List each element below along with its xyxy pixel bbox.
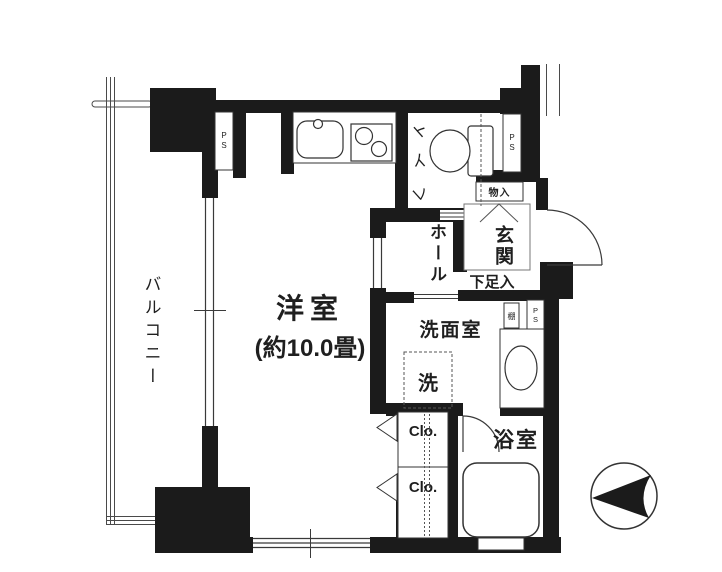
main-room-size-label: (約10.0畳)	[198, 328, 422, 362]
pipe-space-toilet-label: PS	[503, 114, 521, 172]
shelf-label: 棚	[504, 303, 519, 328]
compass	[591, 463, 657, 529]
wall-segment	[215, 100, 540, 113]
exterior-outline	[547, 64, 560, 116]
kitchen-stove	[351, 124, 392, 161]
toilet-label: トイレ	[402, 118, 436, 204]
wall-segment	[281, 112, 294, 174]
wash-basin	[505, 346, 537, 390]
wall-segment	[370, 208, 386, 238]
shoe-cupboard-label: 下足入	[455, 271, 529, 291]
washing-machine-label: 洗	[404, 360, 452, 402]
closet-door-mark	[377, 474, 397, 501]
closet-upper-label: Clo.	[399, 422, 447, 440]
stove-burner	[372, 142, 387, 157]
floor-plan: バルコニー 洋室 (約10.0畳) トイレ ホール 玄関 下足入 物入 洗面室 …	[0, 0, 722, 572]
stove-burner	[356, 128, 373, 145]
washroom-label: 洗面室	[398, 314, 504, 342]
wall-segment	[150, 88, 216, 152]
closet-lower-label: Clo.	[399, 478, 447, 496]
balcony-window	[194, 198, 226, 426]
kitchen-faucet	[314, 120, 323, 129]
pipe-space-kitchen-label: PS	[215, 112, 233, 170]
balcony-divider-panel	[92, 101, 152, 107]
wall-segment	[202, 426, 218, 488]
wall-segment	[540, 262, 573, 299]
bathroom-label: 浴室	[485, 424, 547, 454]
bath-window	[478, 538, 524, 550]
wall-segment	[500, 88, 522, 114]
toilet-bowl	[430, 130, 470, 172]
bathtub	[463, 463, 539, 537]
floor-plan-drawing	[0, 0, 722, 572]
bottom-window	[253, 529, 370, 558]
wall-segment	[536, 178, 548, 210]
wall-segment	[447, 412, 458, 538]
pipe-space-washroom-label: PS	[527, 300, 544, 329]
balcony-label: バルコニー	[136, 254, 166, 410]
hall-sliding-door	[370, 238, 386, 288]
wall-segment	[233, 112, 246, 178]
wall-segment	[521, 65, 540, 181]
entrance-door	[547, 210, 602, 265]
closet-door-mark	[377, 414, 397, 441]
wall-segment	[386, 292, 414, 303]
storage-label: 物入	[476, 182, 523, 201]
entrance-label: 玄関	[489, 215, 516, 277]
hall-label: ホール	[423, 211, 450, 297]
wall-segment	[543, 298, 559, 544]
main-room-label: 洋室	[230, 288, 390, 326]
